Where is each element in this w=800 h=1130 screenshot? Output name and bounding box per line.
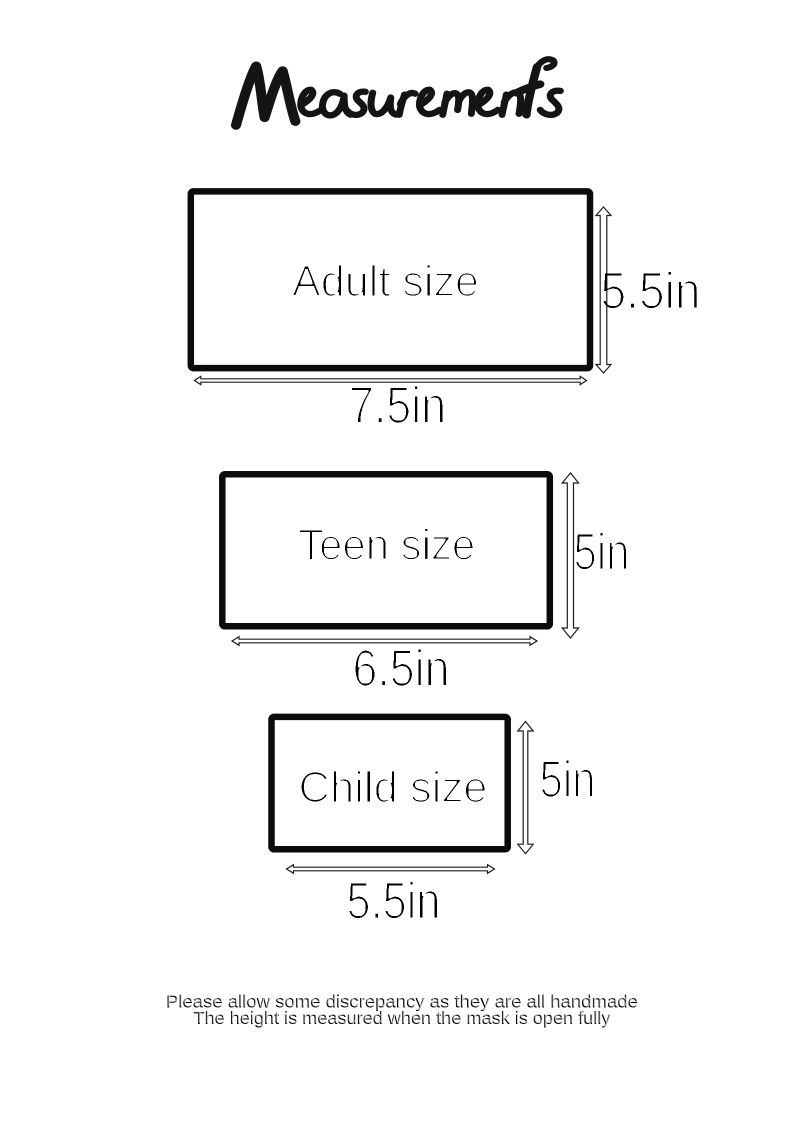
svg-text:Adult size: Adult size bbox=[292, 258, 479, 306]
svg-text:5.5in: 5.5in bbox=[601, 262, 701, 320]
svg-text:5.5in: 5.5in bbox=[347, 872, 441, 930]
svg-text:6.5in: 6.5in bbox=[353, 639, 450, 697]
svg-text:The height is measured when th: The height is measured when the mask is … bbox=[194, 1007, 611, 1027]
svg-text:Teen size: Teen size bbox=[298, 522, 475, 570]
svg-text:Child size: Child size bbox=[299, 763, 488, 812]
svg-text:5in: 5in bbox=[574, 523, 630, 581]
svg-text:5in: 5in bbox=[540, 750, 596, 808]
svg-text:7.5in: 7.5in bbox=[349, 376, 446, 434]
